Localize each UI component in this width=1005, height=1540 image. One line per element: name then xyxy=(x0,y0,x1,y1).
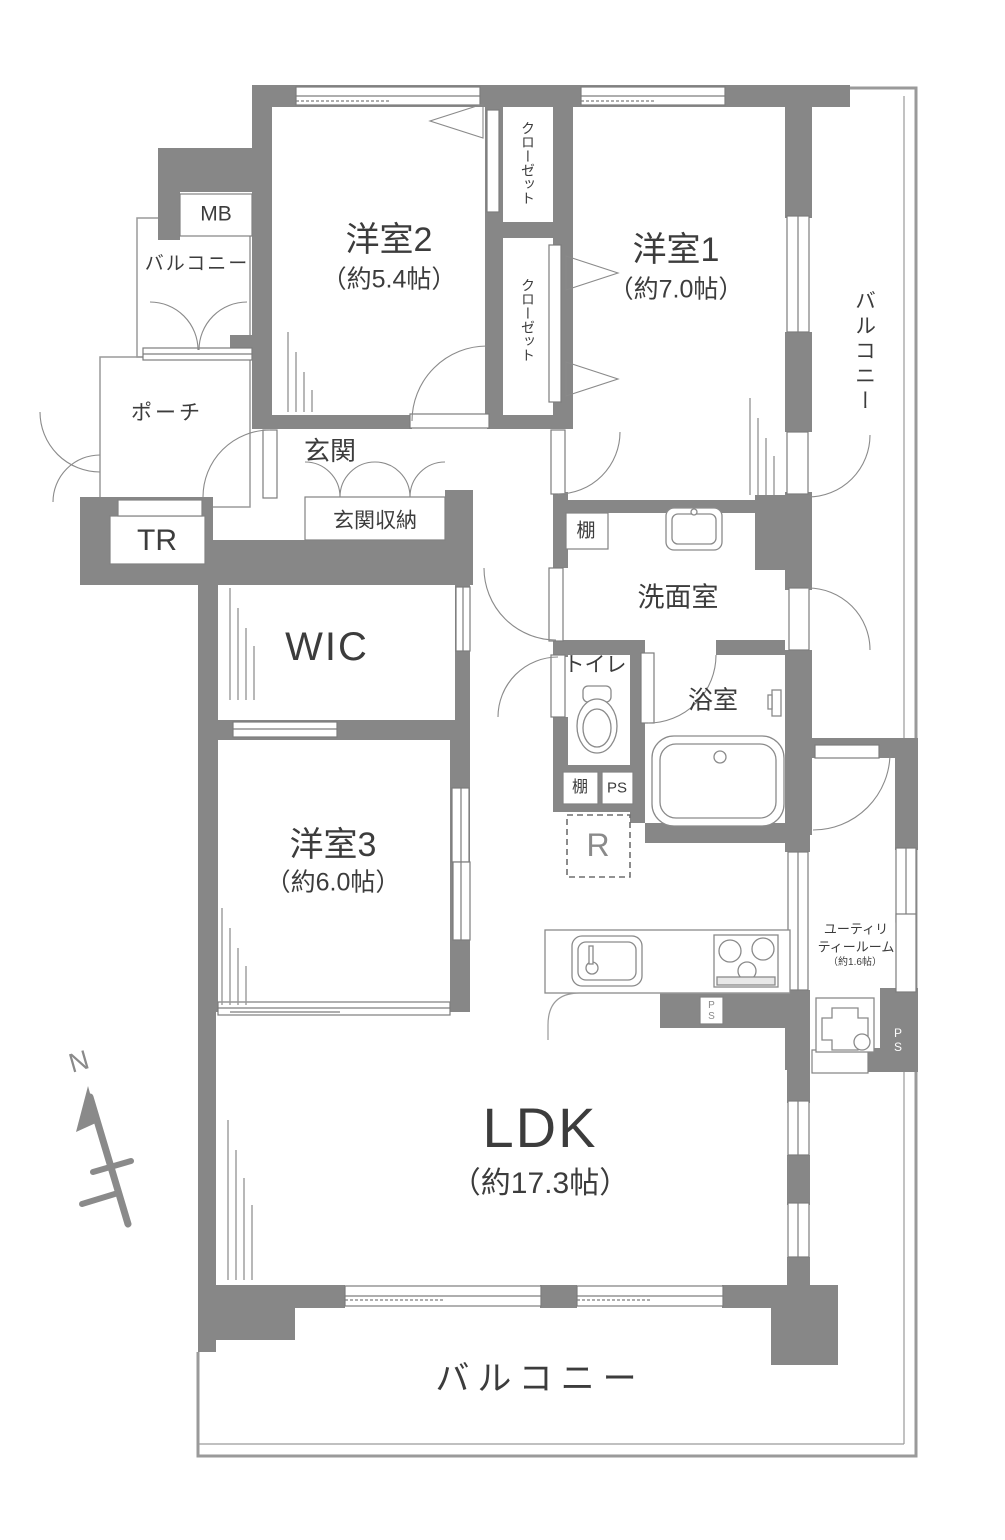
label-genkan: 玄関 xyxy=(304,438,356,464)
stove-icon xyxy=(714,935,778,987)
toilet-icon xyxy=(577,686,617,753)
label-yokushitsu: 浴室 xyxy=(688,689,738,714)
label-closet-upper: クローゼット xyxy=(521,121,535,205)
label-tr: TR xyxy=(137,526,177,556)
label-yoshitsu3-size: （約6.0帖） xyxy=(266,871,401,896)
label-tana-washroom: 棚 xyxy=(576,522,595,541)
label-tana-hall: 棚 xyxy=(572,780,588,796)
label-ldk-size: （約17.3帖） xyxy=(451,1169,629,1199)
label-senmenshitsu: 洗面室 xyxy=(638,585,719,612)
label-genkan-shuno: 玄関収納 xyxy=(333,511,417,532)
floor-plan-drawing xyxy=(0,0,1005,1540)
label-ldk: LDK xyxy=(483,1100,598,1156)
label-ps-kitchen: PS xyxy=(706,1000,716,1022)
label-yoshitsu1-size: （約7.0帖） xyxy=(609,278,744,303)
label-refrigerator: R xyxy=(586,829,609,861)
label-utility-2: ティールーム xyxy=(818,941,895,954)
label-balcony-right: バルコニー xyxy=(854,290,875,415)
label-ps-hall: PS xyxy=(607,781,627,796)
label-utility-size: （約1.6帖） xyxy=(828,958,882,968)
label-mb: MB xyxy=(200,204,232,225)
label-yoshitsu3: 洋室3 xyxy=(290,828,377,862)
label-toilet: トイレ xyxy=(564,655,627,676)
label-balcony-left: バルコニー xyxy=(145,255,250,274)
north-arrow-icon xyxy=(76,1086,131,1224)
label-wic: WIC xyxy=(285,627,369,667)
floor-plan: 洋室2 （約5.4帖） 洋室1 （約7.0帖） 洋室3 （約6.0帖） LDK … xyxy=(0,0,1005,1540)
label-porch: ポーチ xyxy=(131,403,203,424)
label-balcony-bottom: バルコニー xyxy=(435,1362,644,1396)
label-ps-utility: PS xyxy=(892,1026,904,1054)
label-yoshitsu2: 洋室2 xyxy=(346,223,433,257)
label-yoshitsu2-size: （約5.4帖） xyxy=(322,268,457,293)
label-yoshitsu1: 洋室1 xyxy=(633,233,720,267)
label-closet-lower: クローゼット xyxy=(521,278,535,362)
label-utility-1: ユーティリ xyxy=(824,923,888,936)
washing-machine-icon xyxy=(816,998,874,1052)
